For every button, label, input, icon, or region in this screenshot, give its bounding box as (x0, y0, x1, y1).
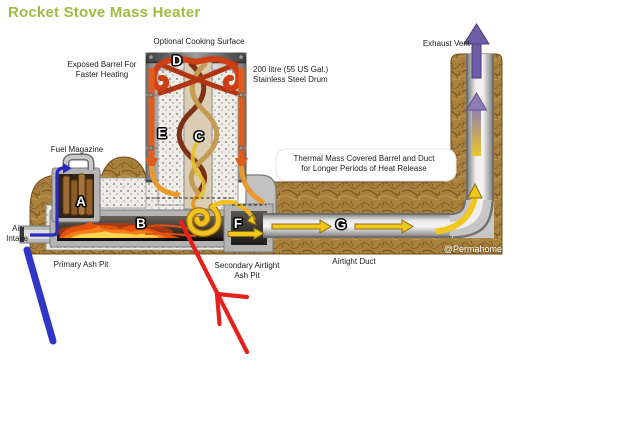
insulation-block (98, 178, 146, 208)
marker-g-airtight-duct: G (333, 217, 349, 232)
exhaust-vent-arrow-shaft (472, 42, 481, 78)
label-thermal-mass: Thermal Mass Covered Barrel and Duct for… (274, 154, 454, 175)
label-airtight-duct: Airtight Duct (314, 257, 394, 267)
marker-c-heat-riser: C (191, 129, 207, 144)
label-air-intake: Air Intake (0, 224, 34, 245)
primary-ash-bed (58, 238, 228, 241)
label-fuel-magazine: Fuel Magazine (27, 145, 127, 155)
label-secondary-ash-pit: Secondary Airtight Ash Pit (197, 261, 297, 282)
label-steel-drum: 200 litre (55 US Gal.) Stainless Steel D… (253, 65, 363, 86)
marker-d-cooking-surface: D (169, 53, 185, 68)
label-exposed-barrel: Exposed Barrel For Faster Heating (52, 60, 152, 81)
rocket-stove-diagram: Rocket Stove Mass Heater Optional Cookin… (0, 0, 617, 424)
marker-a-fuel-magazine: A (73, 194, 89, 209)
cooling-gas-arrow-shaft (472, 108, 481, 156)
marker-f-secondary-ash-pit: F (230, 216, 246, 231)
marker-e-barrel-downdraft: E (154, 126, 170, 141)
watermark: @Permahome (428, 244, 502, 254)
label-exhaust-vent: Exhaust Vent (408, 39, 470, 49)
label-primary-ash-pit: Primary Ash Pit (31, 260, 131, 270)
marker-b-burn-tunnel: B (133, 216, 149, 231)
page-title: Rocket Stove Mass Heater (8, 4, 200, 21)
label-optional-cooking-surface: Optional Cooking Surface (134, 37, 264, 47)
